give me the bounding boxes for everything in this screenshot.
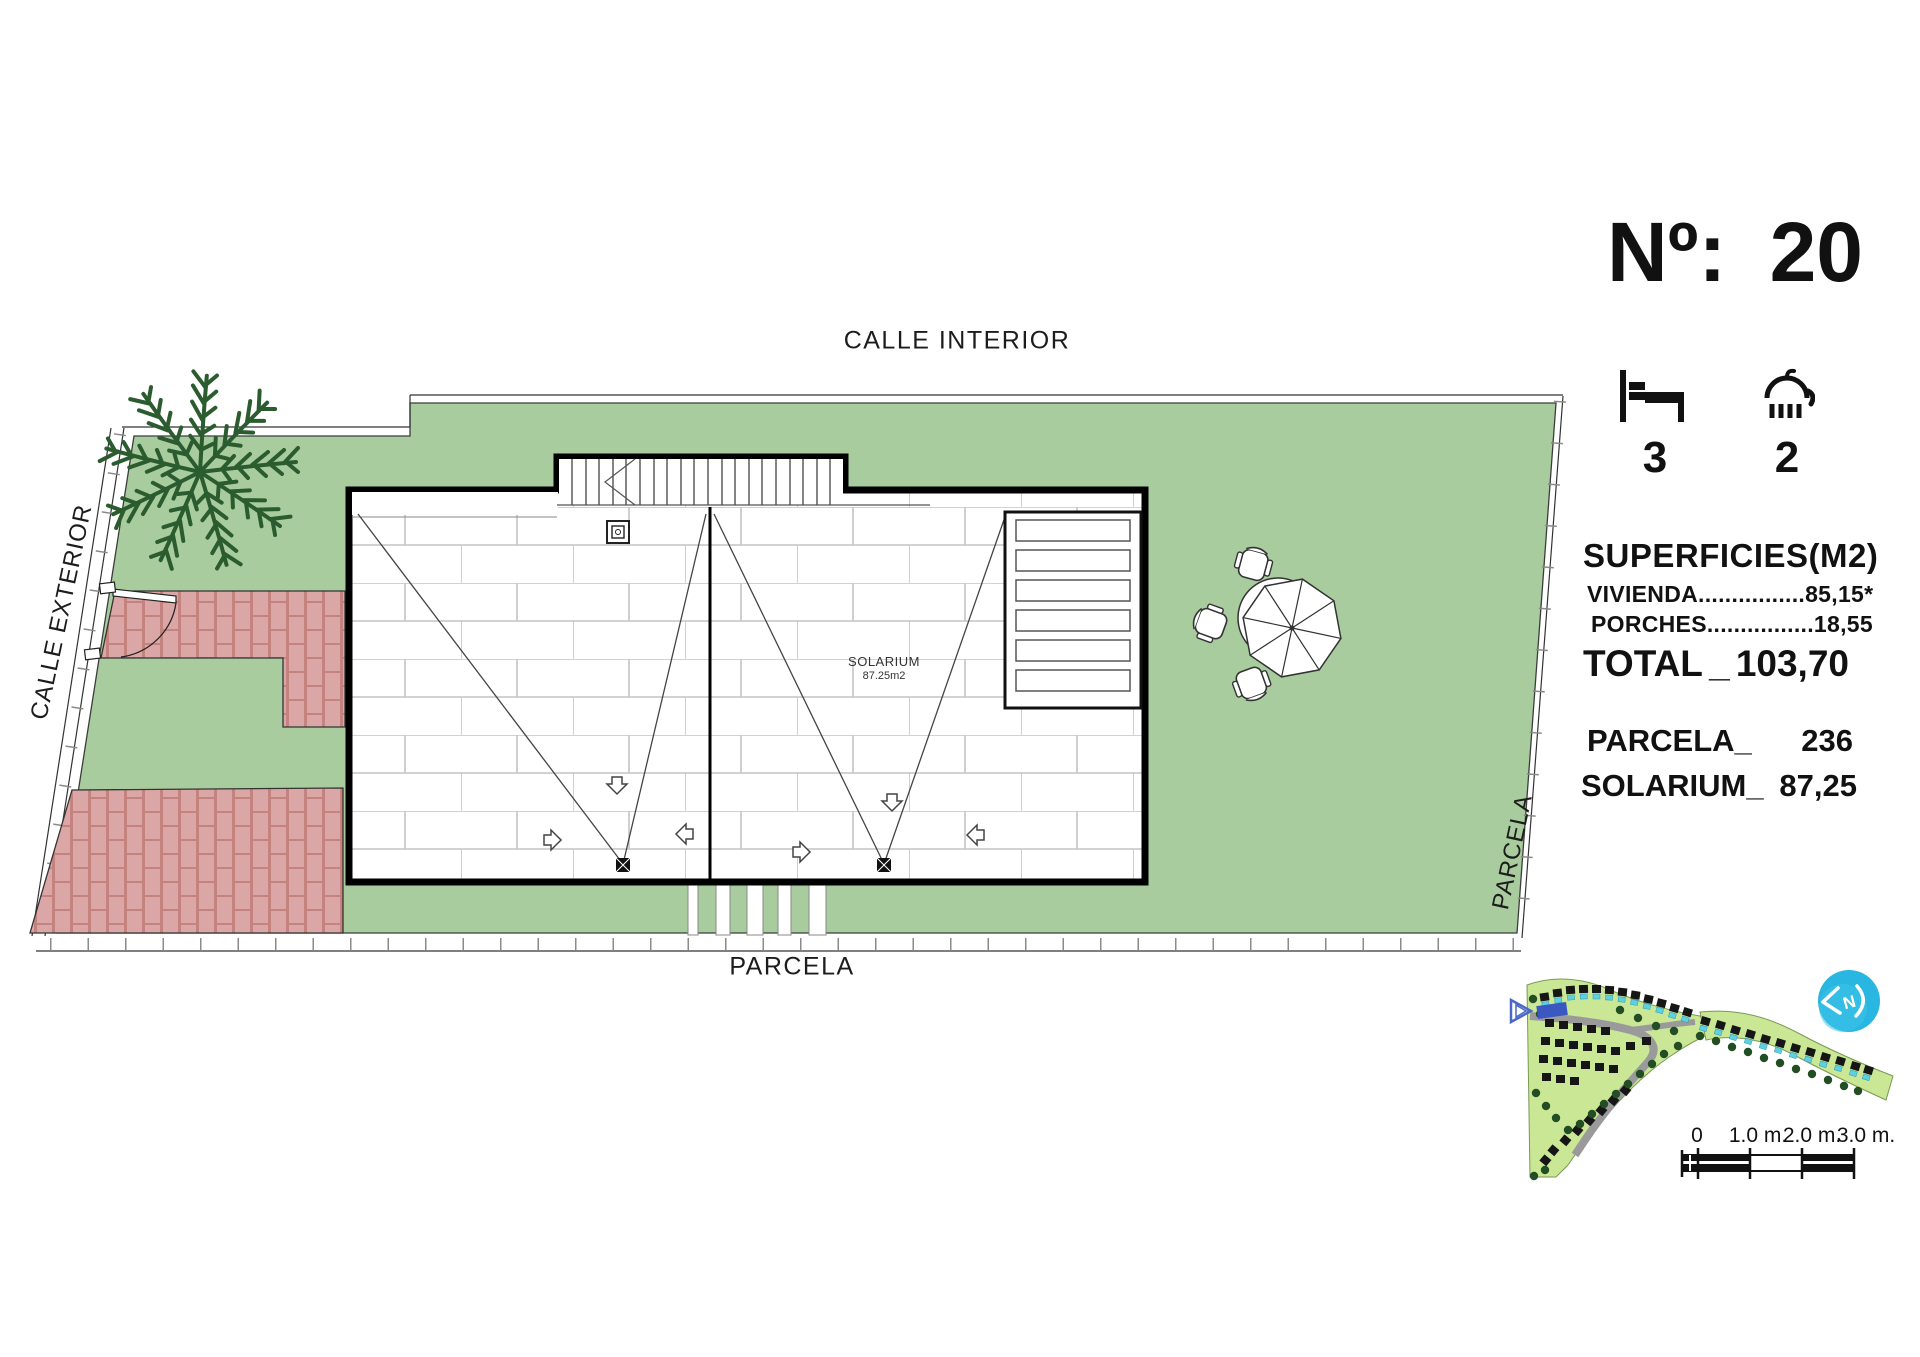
vivienda-row: VIVIENDA................85,15* xyxy=(1587,581,1873,608)
bedrooms-feature: 3 xyxy=(1611,368,1699,483)
building-solarium xyxy=(349,457,1145,882)
parcela-row: PARCELA_ 236 xyxy=(1587,723,1853,759)
total-value: 103,70 xyxy=(1736,643,1849,685)
site-plan-sheet: N 0 1.0 m. 2.0 m. 3.0 m. CALLE INTERIOR … xyxy=(0,0,1920,1357)
scale-tick-0: 0 xyxy=(1691,1124,1703,1147)
solarium-row: SOLARIUM_ 87,25 xyxy=(1581,768,1857,804)
bathrooms-count: 2 xyxy=(1743,433,1831,483)
porches-row: PORCHES................18,55 xyxy=(1591,611,1873,638)
pergola-louvers xyxy=(1005,512,1141,708)
parcela-label: PARCELA_ xyxy=(1587,723,1752,759)
drain xyxy=(877,858,891,872)
porches-label: PORCHES xyxy=(1591,611,1707,638)
parcela-label-bottom: PARCELA xyxy=(729,953,854,982)
scale-tick-3: 3.0 m. xyxy=(1837,1124,1895,1147)
bedrooms-count: 3 xyxy=(1611,433,1699,483)
solarium-label: SOLARIUM_ xyxy=(1581,768,1764,804)
solarium-room-label: SOLARIUM 87.25m2 xyxy=(848,654,920,684)
roof-fixture xyxy=(607,521,629,543)
lot-number-value: 20 xyxy=(1770,210,1863,294)
total-row: TOTAL _ 103,70 xyxy=(1583,643,1849,685)
total-separator: _ xyxy=(1709,643,1730,685)
scale-tick-1: 1.0 m. xyxy=(1729,1124,1787,1147)
vivienda-label: VIVIENDA xyxy=(1587,581,1698,608)
porches-value: 18,55 xyxy=(1814,611,1873,638)
parcela-value: 236 xyxy=(1801,723,1853,759)
drain xyxy=(616,858,630,872)
shower-icon xyxy=(1759,368,1815,424)
bathrooms-feature: 2 xyxy=(1743,368,1831,483)
info-panel: Nº: 20 3 2 xyxy=(1577,196,1877,836)
vivienda-value: 85,15* xyxy=(1805,581,1873,608)
lot-number-label: Nº: xyxy=(1607,210,1726,294)
bed-icon xyxy=(1619,368,1691,424)
brick-driveway xyxy=(30,788,343,933)
feature-icons: 3 2 xyxy=(1611,368,1831,483)
lot-number: Nº: 20 xyxy=(1607,210,1863,294)
north-arrow-logo-icon: N xyxy=(1818,970,1880,1032)
scale-bar: 0 1.0 m. 2.0 m. 3.0 m. xyxy=(1682,1124,1895,1179)
scale-tick-2: 2.0 m. xyxy=(1783,1124,1841,1147)
total-label: TOTAL xyxy=(1583,643,1703,685)
street-label-calle-interior: CALLE INTERIOR xyxy=(844,327,1071,356)
superficies-title: SUPERFICIES(M2) xyxy=(1583,537,1878,575)
solarium-value: 87,25 xyxy=(1779,768,1857,804)
minimap: N xyxy=(1511,970,1893,1180)
